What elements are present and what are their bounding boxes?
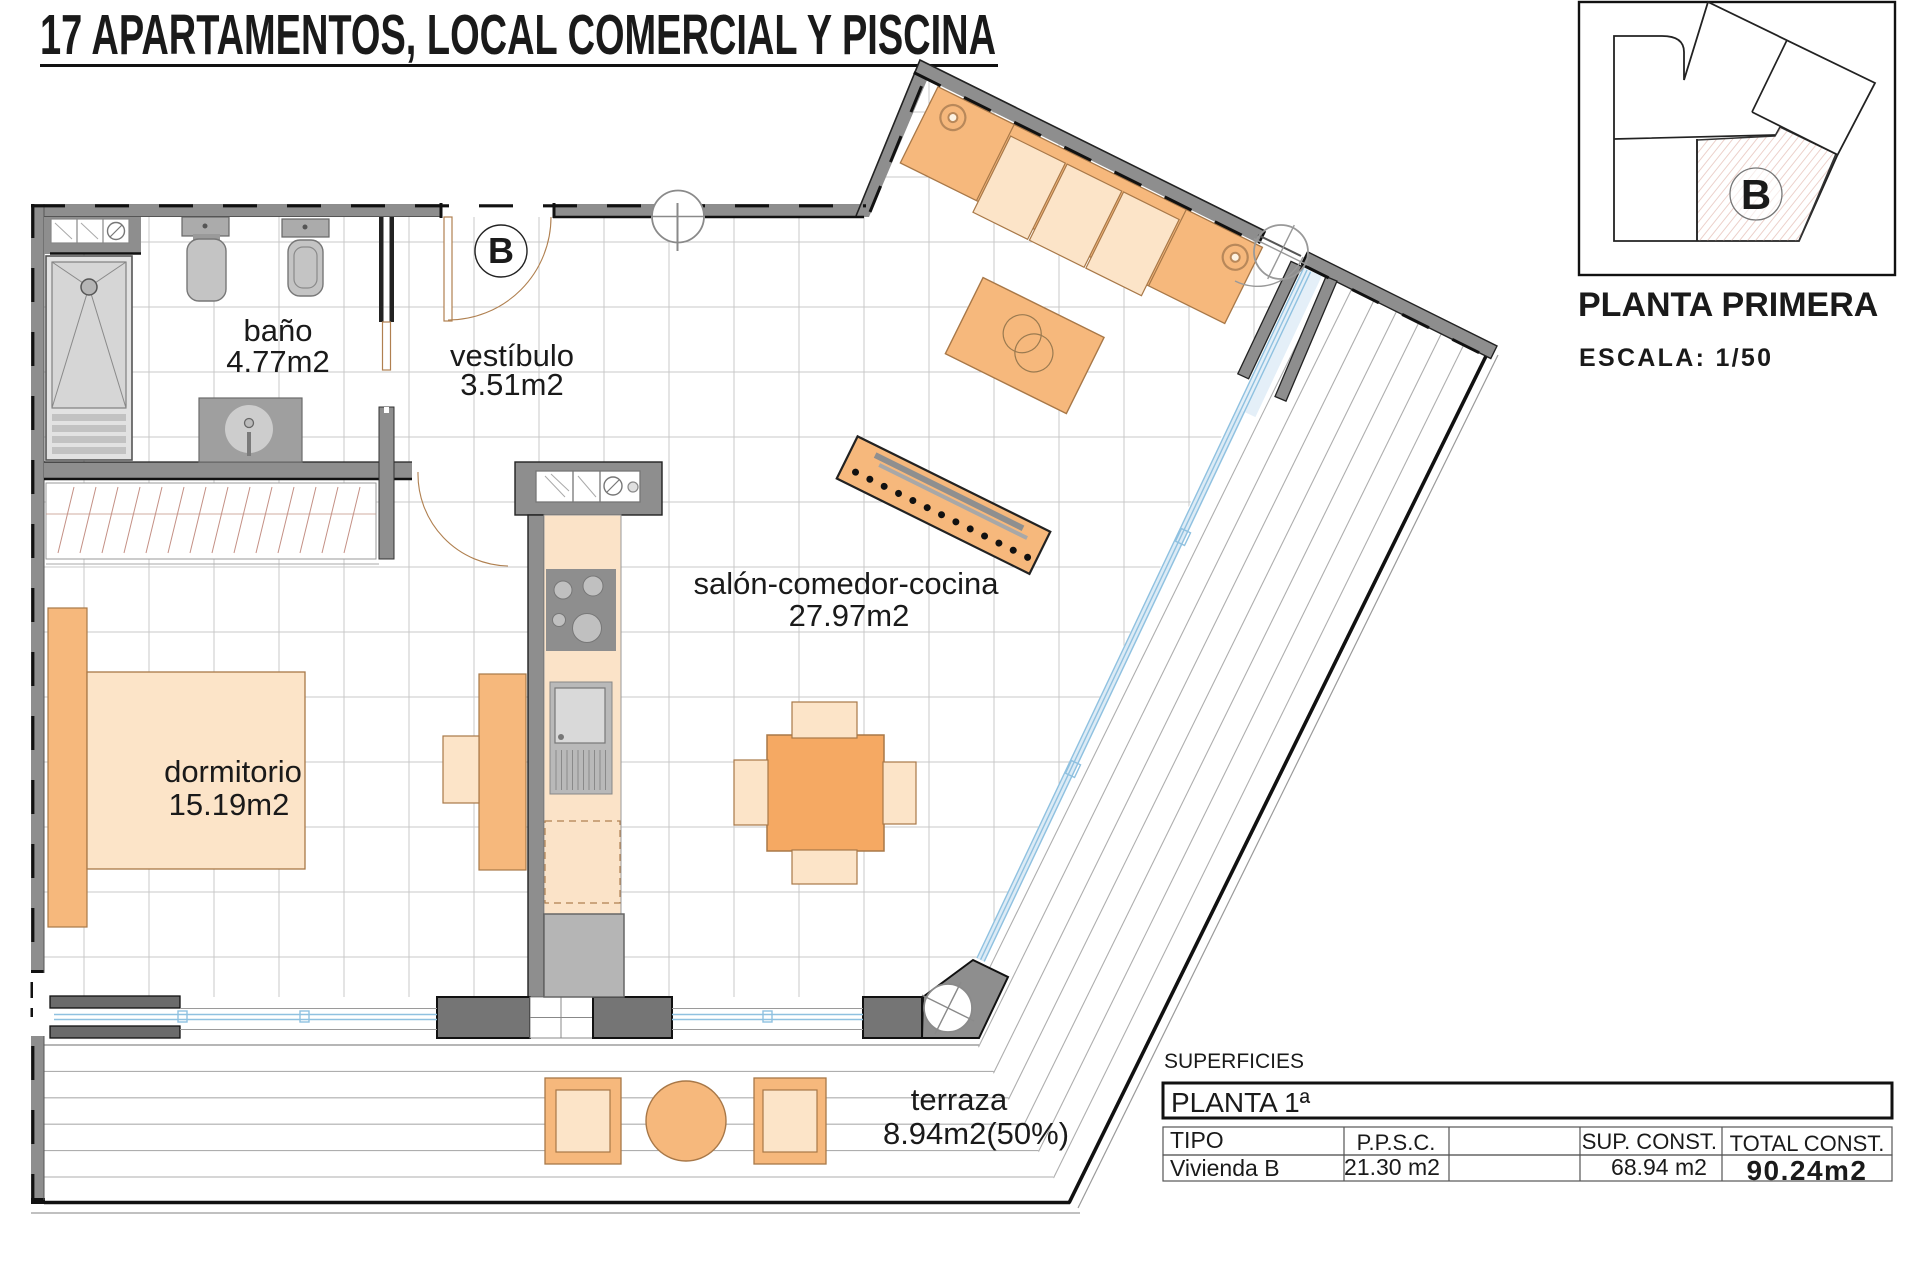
svg-text:3.51m2: 3.51m2	[460, 367, 563, 402]
svg-text:ESCALA: 1/50: ESCALA: 1/50	[1579, 344, 1773, 372]
svg-text:90.24m2: 90.24m2	[1746, 1155, 1867, 1186]
svg-text:17 APARTAMENTOS, LOCAL COMERCI: 17 APARTAMENTOS, LOCAL COMERCIAL Y PISCI…	[40, 3, 996, 67]
svg-text:TOTAL CONST.: TOTAL CONST.	[1730, 1131, 1885, 1156]
svg-text:terraza: terraza	[911, 1082, 1008, 1117]
svg-text:salón-comedor-cocina: salón-comedor-cocina	[694, 566, 1000, 601]
svg-text:B: B	[1741, 171, 1771, 218]
svg-text:SUPERFICIES: SUPERFICIES	[1164, 1050, 1304, 1073]
svg-text:PLANTA PRIMERA: PLANTA PRIMERA	[1578, 286, 1878, 324]
svg-text:8.94m2(50%): 8.94m2(50%)	[883, 1116, 1069, 1151]
svg-text:PLANTA 1ª: PLANTA 1ª	[1171, 1087, 1311, 1118]
svg-text:P.P.S.C.: P.P.S.C.	[1357, 1130, 1436, 1155]
svg-text:Vivienda B: Vivienda B	[1170, 1155, 1280, 1181]
svg-text:68.94 m2: 68.94 m2	[1611, 1154, 1707, 1180]
svg-text:21.30 m2: 21.30 m2	[1344, 1154, 1440, 1180]
svg-text:dormitorio: dormitorio	[164, 754, 302, 789]
svg-text:15.19m2: 15.19m2	[169, 787, 290, 822]
svg-text:baño: baño	[244, 313, 313, 348]
svg-text:TIPO: TIPO	[1170, 1127, 1224, 1153]
svg-text:B: B	[488, 230, 514, 271]
svg-text:SUP. CONST.: SUP. CONST.	[1582, 1129, 1717, 1154]
svg-text:27.97m2: 27.97m2	[789, 598, 910, 633]
svg-text:4.77m2: 4.77m2	[226, 344, 329, 379]
